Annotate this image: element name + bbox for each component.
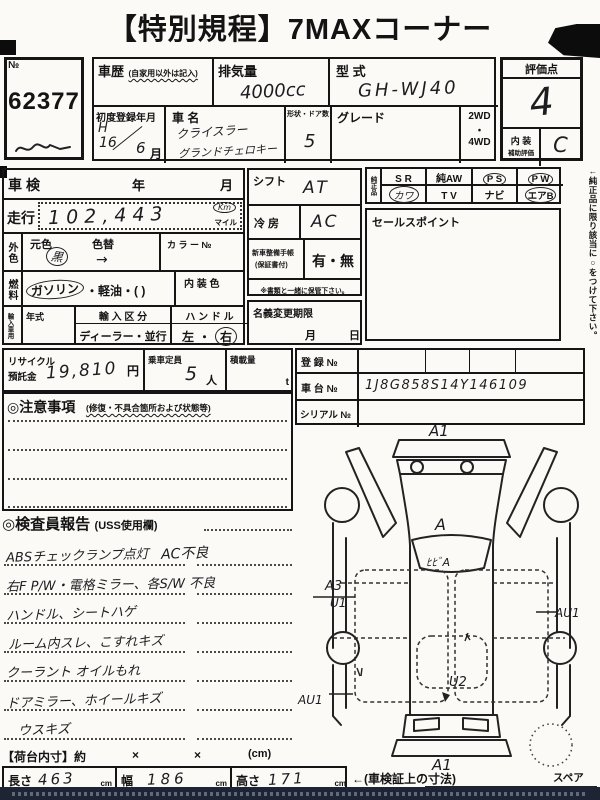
scan-footer-smudge: [12, 792, 588, 796]
genuine-airbag-cell: エアB: [518, 186, 563, 203]
handle-right: 右: [215, 327, 237, 346]
import-year-cell: 年式: [23, 307, 76, 345]
odometer-field: 102,443 Km マイル: [38, 202, 242, 230]
inspector-lines: ABSチェックランプ点灯 AC不良 右F P/W・電格ミラー、各S/W 不良 ハ…: [4, 537, 292, 740]
capacity-unit: 人: [206, 372, 217, 388]
displacement-cell: 排気量 4000cc: [214, 59, 330, 107]
chassis-no-label: 車 台 №: [301, 380, 338, 395]
cowl-circle-right: [461, 461, 473, 473]
drive-4wd: 4WD: [461, 137, 498, 148]
inspector-row: 右F P/W・電格ミラー、各S/W 不良: [4, 566, 292, 595]
model-code-value: GH-WJ40: [358, 77, 459, 102]
windshield-shape: [412, 535, 491, 572]
service-book-value: 有・無: [312, 251, 354, 271]
genuine-tv: T V: [441, 191, 457, 202]
mark-right-side: AU1: [554, 606, 580, 620]
grade-label: グレード: [337, 109, 459, 126]
inspector-row: ハンドル、シートハゲ: [4, 595, 292, 624]
fuel-gasoline: ガソリン: [25, 278, 84, 301]
shaken-row: 車検 年 月: [4, 170, 243, 200]
shaken-label: 車検: [8, 175, 44, 195]
load-cell: 積載量 t: [227, 350, 295, 390]
service-book-label-cell: 新車整備手帳 (保証書付): [249, 240, 305, 280]
first-registration-era: H: [98, 121, 108, 136]
interior-sublabel: 補助評価: [503, 147, 539, 157]
registration-block: 登 録 № 車 台 № 1J8G858S14Y146109 シリアル №: [295, 348, 585, 425]
first-registration-month-value: 6: [136, 139, 146, 157]
mark-windshield: ﾋﾋﾞA: [426, 556, 450, 569]
genuine-row1: S R 純AW P S P W: [382, 169, 563, 186]
shaken-month-label: 月: [220, 175, 233, 194]
genuine-parts-grid: 純正品 S R 純AW P S P W カワ T V ナビ エアB: [365, 167, 561, 204]
lot-number-value: 62377: [7, 88, 81, 116]
displacement-value: 4000cc: [239, 79, 306, 103]
handle-label: ハ ン ド ル: [172, 308, 247, 324]
car-name-cell: 車 名 クライスラー グランドチェロキー: [166, 107, 286, 163]
load-unit: t: [286, 377, 289, 388]
lot-number-box: № 62377: [4, 57, 84, 160]
first-registration-slash: ／: [112, 119, 138, 156]
name-change-label: 名義変更期限: [253, 305, 360, 320]
car-name-line2: グランドチェロキー: [178, 140, 278, 161]
inspector-row: クーラント オイルもれ: [4, 653, 292, 682]
fuel-rest: ・軽油・( ): [86, 282, 145, 299]
import-year-label: 年式: [26, 310, 44, 323]
right-front-wheel: [544, 488, 578, 522]
keep-note: ※書類と一緒に保管下さい。: [260, 288, 348, 295]
genuine-sr-cell: S R: [382, 169, 427, 186]
right-bottom-line: [562, 665, 570, 725]
inspector-text-left: クーラント オイルもれ: [6, 660, 140, 681]
sales-point-box: セールスポイント: [365, 208, 561, 341]
right-rear-wheel: [544, 632, 576, 664]
inspector-text-left: ハンドル、シートハゲ: [6, 601, 137, 625]
inspector-title: ◎検査員報告: [2, 516, 90, 533]
sheet-title: 【特別規程】7MAXコーナー: [0, 6, 600, 48]
odometer-value: 102,443: [48, 203, 169, 229]
cautions-line2: [8, 449, 287, 451]
inspector-row: ウスキズ: [4, 711, 292, 740]
odometer-unit-km: Km: [213, 202, 236, 213]
cautions-line4: [8, 506, 287, 508]
genuine-aw: 純AW: [436, 174, 462, 185]
grade-cell: グレード: [332, 107, 461, 163]
inspector-header-line: [204, 529, 292, 531]
small-mark-left: [357, 668, 362, 676]
exterior-color-row: 外色 元色 黒 色替 → カ ラ ー №: [4, 234, 243, 272]
cautions-title: ◎注意事項: [7, 397, 75, 417]
recycle-cell: リサイクル 預託金 19,810 円: [4, 350, 145, 390]
service-book-label2: (保証書付): [255, 260, 303, 270]
registration-no-label: 登 録 №: [301, 354, 338, 369]
shaken-year-label: 年: [132, 175, 145, 194]
front-bumper-shape: [393, 440, 510, 457]
rear-bumper-shape: [392, 740, 511, 756]
inspector-row: ドアミラー、ホイールキズ: [4, 682, 292, 711]
fuel-vlabel: 燃料: [4, 272, 23, 307]
name-change-month: 月: [305, 327, 316, 343]
service-book-row: 新車整備手帳 (保証書付) 有・無: [249, 240, 360, 280]
handle-left: 左: [182, 330, 194, 344]
inspector-row: ルーム内スレ、こすれキズ: [4, 624, 292, 653]
genuine-leather: カワ: [389, 186, 419, 203]
inspector-text-left: ABSチェックランプ点灯: [6, 543, 149, 566]
rating-box: 評価点 4 内 装 補助評価 C: [500, 57, 583, 161]
import-vlabel: 輸入車用: [4, 307, 23, 345]
genuine-aw-cell: 純AW: [427, 169, 473, 186]
sales-point-label: セールスポイント: [372, 214, 460, 230]
history-cell: 車歴 (自家用以外は記入): [94, 59, 214, 107]
inspector-report: ◎検査員報告 (USS使用欄): [2, 513, 294, 534]
recycle-yen: 円: [127, 362, 139, 379]
capacity-cell: 乗車定員 5 人: [145, 350, 227, 390]
chassis-no-row: 車 台 № 1J8G858S14Y146109: [297, 374, 583, 401]
import-type-value: ディーラー・並行: [76, 328, 170, 344]
mark-rear-bumper: A1: [431, 756, 452, 772]
doors-label: 形状・ドア数: [287, 109, 330, 119]
registration-no-label-cell: 登 録 №: [297, 350, 359, 374]
width-value: 186: [147, 769, 188, 788]
base-color-value: 黒: [45, 246, 69, 268]
genuine-side-note: ←純正品に限り該当に○をつけて下さい。: [584, 166, 599, 422]
import-type-cell: 輸 入 区 分 ディーラー・並行: [76, 307, 172, 345]
genuine-tv-cell: T V: [427, 186, 473, 203]
interior-label: 内 装: [503, 134, 539, 147]
interior-color-cell: 内 装 色: [174, 272, 247, 307]
interior-color-label: 内 装 色: [184, 275, 220, 290]
interior-rating-label-cell: 内 装 補助評価: [503, 129, 541, 166]
fuel-row: 燃料 ガソリン ・軽油・( ) 内 装 色: [4, 272, 243, 307]
service-book-label1: 新車整備手帳: [252, 248, 303, 258]
keep-note-row: ※書類と一緒に保管下さい。: [249, 280, 360, 298]
model-code-label: 型 式: [336, 61, 498, 80]
cautions-box: ◎注意事項 (修復・不具合箇所および状態等): [2, 392, 293, 511]
genuine-parts-vlabel: 純正品: [367, 169, 382, 202]
exterior-color-vlabel: 外色: [4, 234, 23, 272]
displacement-label: 排気量: [218, 61, 328, 80]
mark-rear-gate: U2: [449, 675, 467, 690]
genuine-sr: S R: [395, 174, 412, 185]
chassis-no-label-cell: 車 台 №: [297, 374, 359, 401]
mark-front-bumper: A1: [428, 422, 449, 440]
name-change-day: 日: [349, 327, 360, 343]
cargo-x2: ×: [194, 748, 201, 762]
genuine-pw: P W: [528, 173, 554, 186]
recycle-row: リサイクル 預託金 19,810 円 乗車定員 5 人 積載量 t: [2, 348, 293, 392]
mid-table: シフト AT 冷 房 AC 新車整備手帳 (保証書付) 有・無 ※書類と一緒に保…: [247, 168, 362, 296]
car-name-line1: クライスラー: [175, 121, 248, 143]
shift-value: AT: [303, 178, 330, 198]
first-registration-cell: 初度登録年月 H 16 ／ 6 月: [94, 107, 166, 163]
inspector-note: (USS使用欄): [95, 520, 158, 532]
handle-cell: ハ ン ド ル 左 ・ 右: [172, 307, 247, 345]
genuine-pw-cell: P W: [518, 169, 563, 186]
inspector-text-right: AC不良: [161, 542, 209, 564]
registration-no-divider2: [469, 350, 470, 374]
cautions-line3: [8, 478, 287, 480]
capacity-label: 乗車定員: [148, 354, 182, 366]
shift-label: シフト: [253, 173, 286, 189]
inspector-row: ABSチェックランプ点灯 AC不良: [4, 537, 292, 566]
spare-label: スペア: [553, 770, 584, 785]
lot-number-label: №: [8, 60, 19, 71]
serial-no-label: シリアル №: [300, 407, 351, 421]
interior-rating-row: 内 装 補助評価 C: [503, 127, 580, 164]
body-left-edge: [400, 474, 410, 715]
rating-value: 4: [501, 76, 582, 128]
color-no-label: カ ラ ー №: [167, 238, 212, 251]
name-change-box: 名義変更期限 月 日: [247, 300, 362, 345]
load-label: 積載量: [230, 354, 256, 366]
registration-no-row: 登 録 №: [297, 350, 583, 374]
registration-no-divider3: [515, 350, 516, 374]
cautions-note: (修復・不具合箇所および状態等): [86, 402, 211, 414]
drive-cell: 2WD ・ 4WD: [461, 107, 498, 163]
handle-dot: ・: [198, 330, 210, 344]
tail-light-right: [463, 718, 488, 731]
genuine-navi: ナビ: [485, 191, 505, 202]
mark-left-door-a3: A3: [324, 579, 342, 594]
genuine-row2: カワ T V ナビ エアB: [382, 186, 563, 203]
chassis-no-value: 1J8G858S14Y146109: [365, 378, 528, 393]
spare-tire-circle: [530, 724, 572, 766]
auction-sheet: 【特別規程】7MAXコーナー № 62377 車歴 (自家用以外は記入) 排気量…: [0, 0, 600, 800]
cautions-line1: [8, 420, 287, 422]
mark-left-rear: AU1: [297, 693, 323, 707]
small-mark-center: [465, 633, 470, 641]
genuine-ps: P S: [483, 173, 506, 186]
interior-rating-value: C: [541, 133, 580, 157]
genuine-navi-cell: ナビ: [473, 186, 518, 203]
doors-cell: 形状・ドア数 5: [286, 107, 332, 163]
length-value: 463: [38, 769, 77, 789]
signature-scribble: [13, 138, 75, 158]
left-bottom-line: [333, 665, 341, 725]
genuine-ps-cell: P S: [473, 169, 518, 186]
scan-footer-strip: [0, 787, 600, 800]
dimensions-note: ←(車検証上の寸法): [352, 770, 456, 787]
cargo-dims-row: 【荷台内寸】約 × × (cm): [2, 748, 342, 766]
mark-hood: A: [434, 515, 446, 534]
drive-2wd: 2WD: [461, 111, 498, 122]
mark-left-door-u1: U1: [330, 596, 346, 610]
history-label: 車歴: [98, 61, 124, 80]
ac-value: AC: [311, 212, 339, 232]
odometer-unit-mile: マイル: [215, 217, 238, 228]
left-rear-wheel: [327, 632, 359, 664]
ac-row: 冷 房 AC: [249, 206, 360, 240]
inspector-text-left: ルーム内スレ、こすれキズ: [8, 630, 164, 653]
cargo-unit: (cm): [248, 748, 271, 760]
repaint-arrow: →: [96, 252, 108, 268]
height-value: 171: [268, 769, 307, 789]
ac-label: 冷 房: [254, 215, 279, 231]
left-detail-table: 車検 年 月 走行 102,443 Km マイル 外色 元色 黒 色替 → カ …: [2, 168, 245, 345]
tail-light-left: [414, 718, 439, 731]
model-code-cell: 型 式 GH-WJ40: [330, 59, 498, 107]
inspector-row-underline-right: [197, 738, 292, 740]
genuine-airbag: エアB: [525, 187, 557, 203]
odometer-label: 走行: [7, 208, 35, 228]
rear-gate-shape: [403, 715, 500, 737]
ac-label-cell: 冷 房: [249, 206, 301, 240]
repaint-label: 色替: [92, 236, 114, 252]
first-registration-month-label: 月: [150, 145, 162, 162]
inspector-text-left: ウスキズ: [18, 718, 71, 739]
cargo-dims-label: 【荷台内寸】約: [2, 748, 86, 765]
shift-row: シフト AT: [249, 170, 360, 206]
odometer-row: 走行 102,443 Km マイル: [4, 200, 243, 234]
cargo-x1: ×: [132, 748, 139, 762]
genuine-leather-cell: カワ: [382, 186, 427, 203]
cowl-circle-left: [411, 461, 423, 473]
capacity-value: 5: [185, 363, 197, 385]
import-type-label: 輸 入 区 分: [76, 308, 170, 324]
import-row: 輸入車用 年式 輸 入 区 分 ディーラー・並行 ハ ン ド ル 左 ・ 右: [4, 307, 243, 345]
drive-dot: ・: [461, 122, 498, 137]
doors-value: 5: [304, 131, 315, 152]
car-damage-diagram: A1 A ﾋﾋﾞA A3 U1 AU1 AU1 U2 A1: [293, 420, 600, 772]
body-right-edge: [493, 474, 503, 715]
rating-label: 評価点: [525, 64, 558, 76]
history-note: (自家用以外は記入): [128, 69, 197, 78]
color-no-cell: カ ラ ー №: [159, 234, 247, 272]
left-front-wheel: [325, 488, 359, 522]
registration-no-divider1: [425, 350, 426, 374]
vehicle-header-table: 車歴 (自家用以外は記入) 排気量 4000cc 型 式 GH-WJ40 初度登…: [92, 57, 496, 161]
inspector-text-left: 右F P/W・電格ミラー、各S/W 不良: [6, 572, 215, 595]
